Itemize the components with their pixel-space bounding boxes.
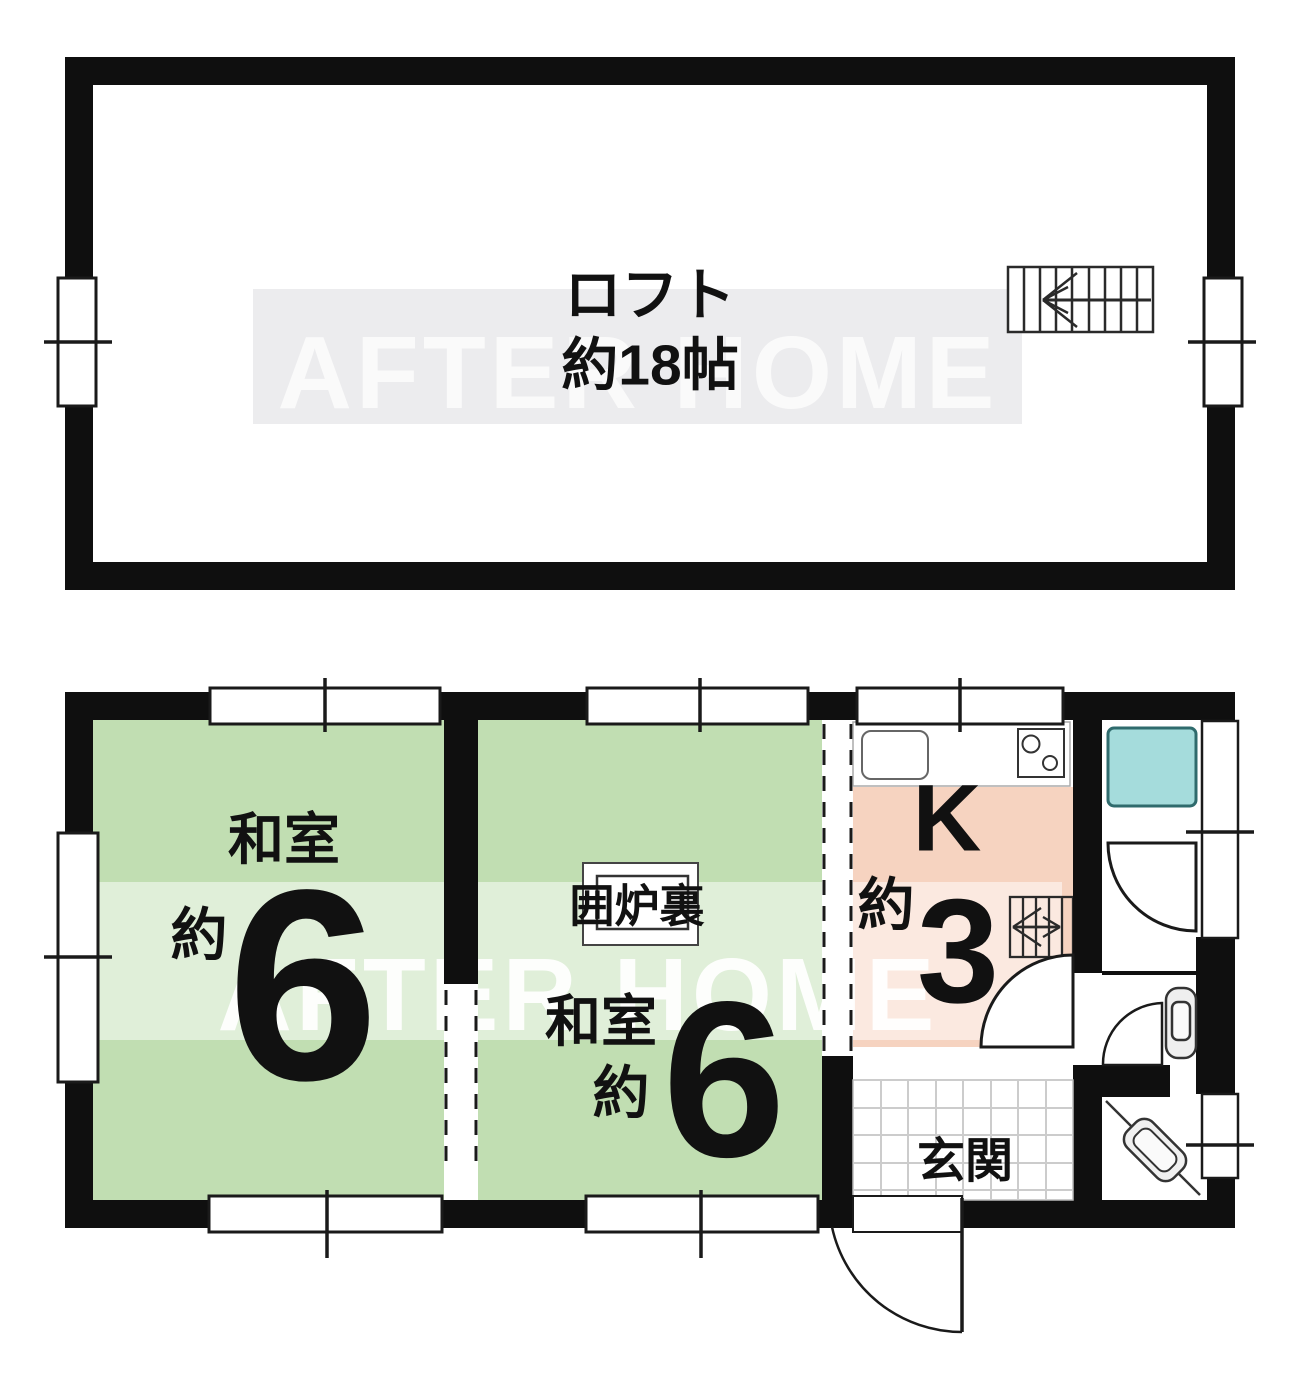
window-top-2 — [587, 688, 808, 724]
wall-between-tatami-rooms — [444, 720, 478, 984]
floor-plan-drawing: AFTER HOME AFT — [0, 0, 1300, 1385]
wall-kitchen-right-lower — [1073, 1097, 1102, 1200]
toilet-icon — [1166, 988, 1196, 1058]
floor1-windows-top — [210, 678, 1063, 732]
stairs-icon-loft — [1008, 267, 1153, 332]
irori-label: 囲炉裏 — [569, 884, 704, 929]
entrance-label: 玄関 — [917, 1138, 1013, 1186]
kitchen-size: 3 — [917, 878, 999, 1026]
kitchen-label: K — [913, 772, 982, 867]
tatami-left-size: 6 — [227, 849, 372, 1121]
wall-right-pier — [1196, 937, 1235, 1094]
wall-below-toilet — [1073, 1065, 1170, 1097]
stove-icon — [1018, 729, 1064, 777]
tatami-center-label: 和室 — [545, 994, 657, 1050]
tatami-center-size: 6 — [662, 969, 781, 1191]
wall-room2-genkan — [822, 1056, 853, 1228]
wall-kitchen-right-upper — [1073, 720, 1102, 973]
floor-plan-image: AFTER HOME AFT — [0, 0, 1300, 1385]
loft-area: 約18帖 — [561, 338, 738, 395]
tatami-left-approx: 約 — [171, 908, 228, 965]
tatami-center-approx: 約 — [593, 1066, 650, 1123]
window-right-lower — [1202, 1094, 1238, 1178]
loft-label: ロフト — [565, 268, 736, 325]
bathtub-icon — [1108, 728, 1196, 806]
window-right-upper — [1202, 721, 1238, 938]
front-door-arc — [832, 1227, 962, 1332]
kitchen-approx: 約 — [858, 878, 915, 935]
